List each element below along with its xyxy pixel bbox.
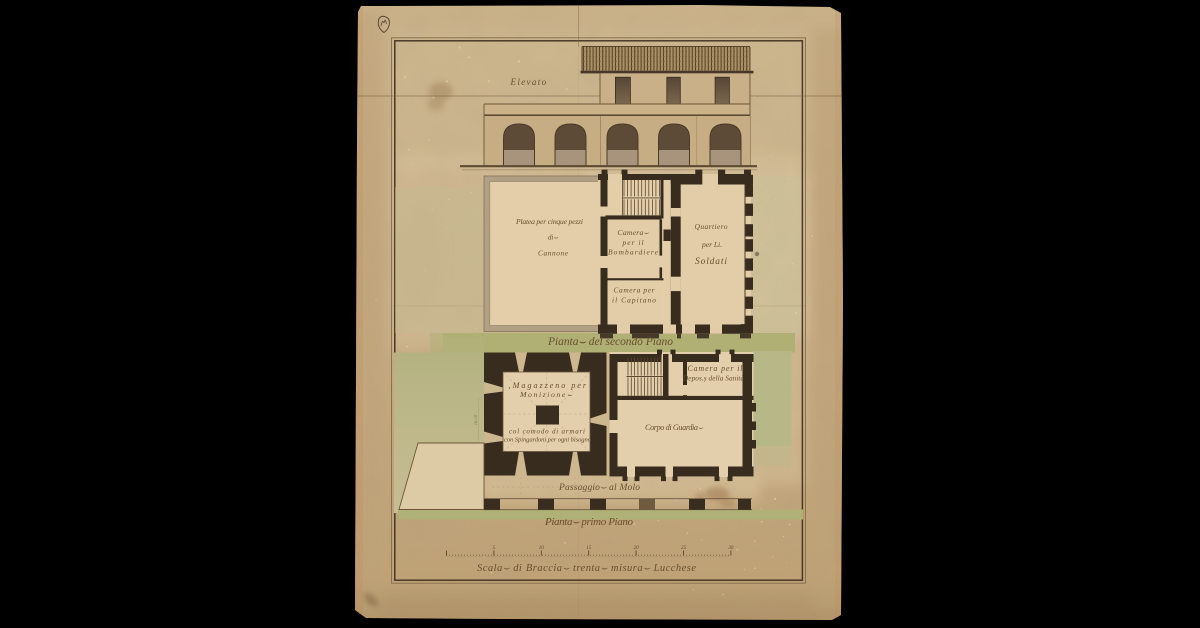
svg-text:Depos.ṣ della Sanità.: Depos.ṣ della Sanità. [682,375,746,383]
svg-text:25: 25 [681,546,687,551]
svg-text:Corpo di Guardia⌣: Corpo di Guardia⌣ [645,423,704,432]
svg-text:30: 30 [728,546,734,551]
svg-text:il Capitano: il Capitano [612,296,656,305]
svg-text:col comodo di armari: col comodo di armari [509,428,585,436]
svg-text:Camera per: Camera per [614,286,655,295]
svg-text:di⌣: di⌣ [548,234,559,242]
svg-text:20: 20 [634,546,640,551]
svg-text:Camera per il: Camera per il [688,364,744,373]
svg-text:con Spingardoni per ogni bisog: con Spingardoni per ogni bisogno [504,437,592,444]
svg-text:Pianta⌣ del secondo Piano: Pianta⌣ del secondo Piano [547,336,673,348]
svg-text:Cannone: Cannone [538,249,569,258]
svg-text:Bombardiere: Bombardiere [608,248,659,257]
svg-text:10: 10 [539,546,545,551]
svg-text:15: 15 [586,546,592,551]
svg-text:Pianta⌣ primo Piano: Pianta⌣ primo Piano [544,516,634,528]
svg-text:Platea per cinque pezzi: Platea per cinque pezzi [515,217,583,226]
svg-text:per Li.: per Li. [701,240,722,249]
svg-text:Elevato: Elevato [510,77,548,87]
svg-text:Soldati: Soldati [695,257,727,267]
svg-text:Quartiero: Quartiero [695,222,728,231]
svg-text:Camera⌣: Camera⌣ [618,228,650,237]
svg-text:16:10: 16:10 [473,414,478,425]
svg-text:Passaggio⌣ al​ Molo: Passaggio⌣ al​ Molo [558,483,640,493]
svg-text:per il: per il [622,238,644,247]
svg-text:Scala⌣ di​ Braccia⌣ trenta⌣ mi: Scala⌣ di​ Braccia⌣ trenta⌣ misura⌣ Lucc… [477,563,696,574]
